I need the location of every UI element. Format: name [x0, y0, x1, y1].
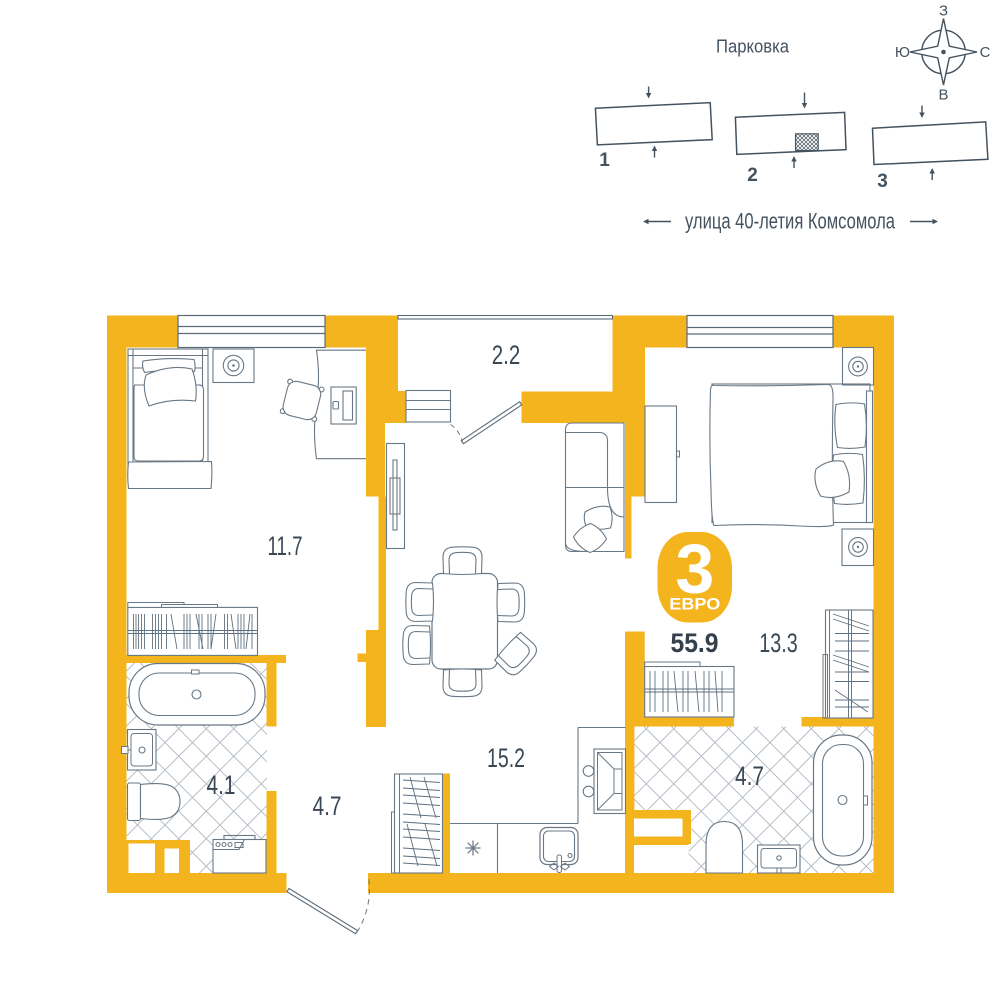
svg-text:2.2: 2.2	[492, 340, 521, 370]
svg-text:2: 2	[747, 165, 758, 186]
svg-text:ЕВРО: ЕВРО	[669, 596, 720, 614]
svg-text:3: 3	[877, 171, 888, 192]
svg-text:55.9: 55.9	[671, 628, 719, 658]
svg-text:15.2: 15.2	[487, 743, 525, 773]
svg-text:Ю: Ю	[895, 44, 910, 61]
svg-text:13.3: 13.3	[759, 628, 798, 658]
svg-text:11.7: 11.7	[268, 531, 303, 561]
svg-text:1: 1	[599, 150, 610, 171]
svg-text:улица 40-летия Комсомола: улица 40-летия Комсомола	[685, 209, 896, 234]
svg-text:4.7: 4.7	[735, 761, 764, 791]
svg-text:4.7: 4.7	[313, 791, 342, 821]
svg-text:С: С	[980, 44, 991, 61]
svg-text:Парковка: Парковка	[716, 37, 790, 57]
svg-text:В: В	[938, 87, 948, 104]
svg-text:4.1: 4.1	[207, 770, 236, 800]
svg-text:З: З	[939, 3, 948, 20]
